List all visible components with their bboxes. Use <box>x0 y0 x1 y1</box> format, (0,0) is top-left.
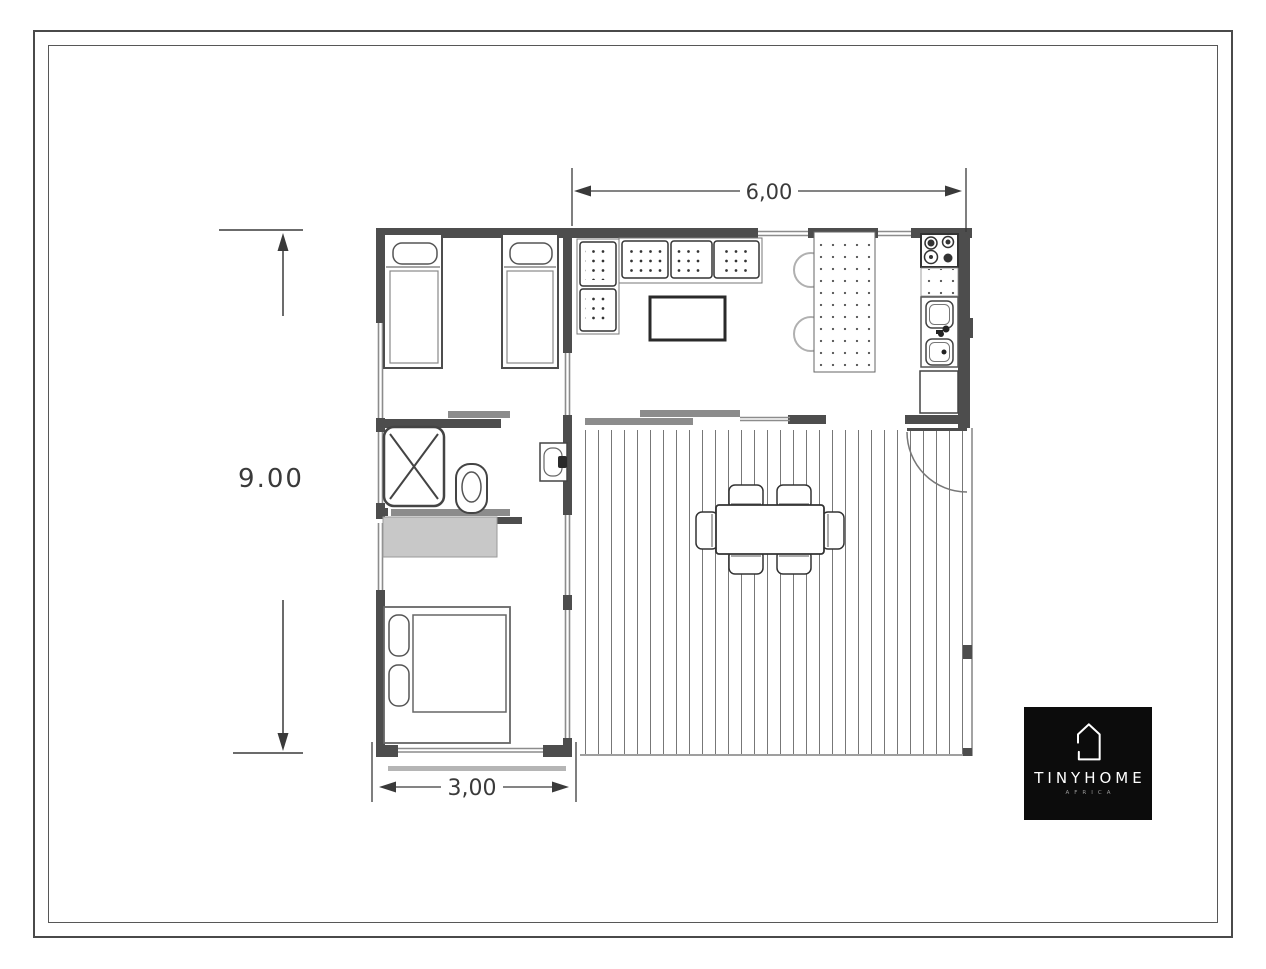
dimension-left: 9.00 <box>219 230 304 753</box>
dining-chair <box>696 512 718 549</box>
wardrobe <box>383 517 497 557</box>
kitchen-cabinet <box>920 371 958 413</box>
floor-plan-drawing: 6,00 9.00 3,00 <box>0 0 1266 969</box>
kitchen-counter <box>921 268 958 296</box>
shower <box>384 427 444 506</box>
dimension-left-label: 9.00 <box>238 464 304 494</box>
stove <box>921 234 958 267</box>
bathroom-sink <box>540 443 567 481</box>
bed-single-left <box>384 234 442 368</box>
toilet <box>456 464 487 513</box>
dining-table <box>716 505 824 554</box>
brand-name: TINYHOME <box>1030 769 1145 787</box>
dimension-top: 6,00 <box>572 168 966 232</box>
deck <box>580 428 972 756</box>
kitchen-bar <box>814 232 875 372</box>
floor-plan-page: 6,00 9.00 3,00 TINYHOME AFRICA <box>0 0 1266 969</box>
dining-chair <box>822 512 844 549</box>
bed-double <box>384 607 510 743</box>
brand-subtitle: AFRICA <box>1061 790 1116 796</box>
dimension-bottom-label: 3,00 <box>448 776 497 801</box>
bed-single-right <box>502 234 558 368</box>
brand-logo: TINYHOME AFRICA <box>1024 707 1152 820</box>
dimension-top-label: 6,00 <box>746 180 793 204</box>
coffee-table <box>650 297 725 340</box>
house-icon <box>1068 718 1108 764</box>
kitchen-sink <box>921 297 958 367</box>
